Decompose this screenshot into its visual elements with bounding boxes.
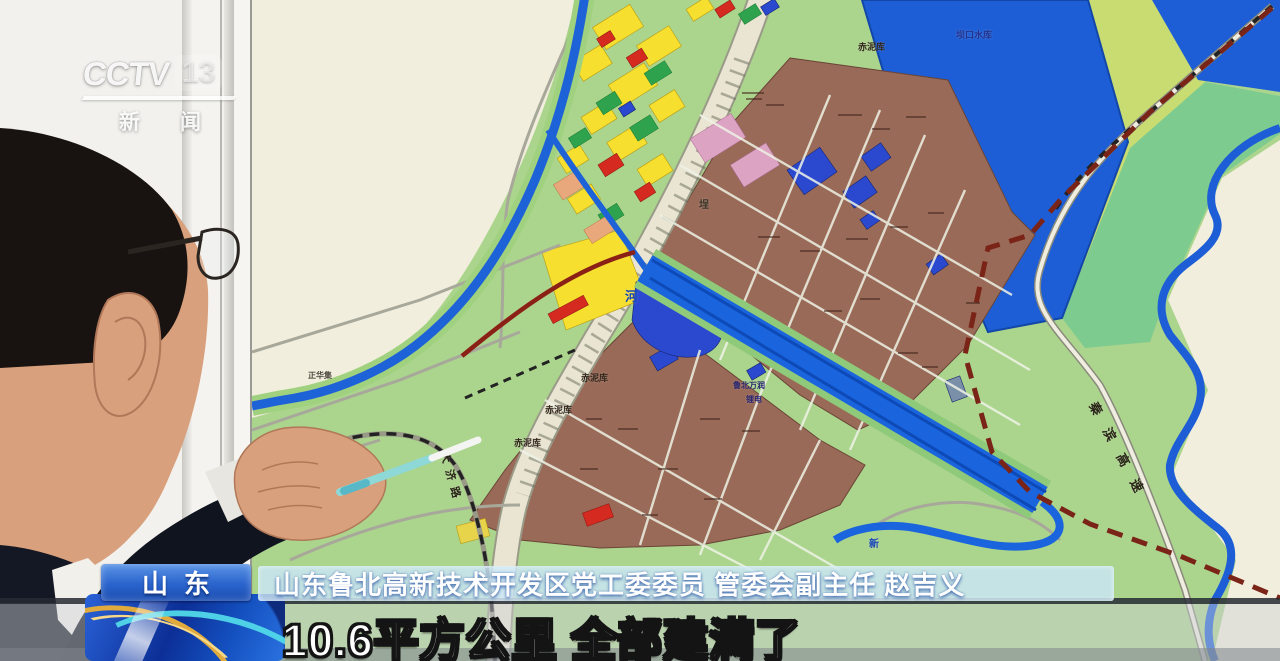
cctv-logo-text: CCTV [81, 55, 171, 93]
subtitle-caption: 10.6平方公里 全部建满了 [282, 604, 801, 661]
cctv-channel-label: 新闻 [119, 106, 241, 136]
cctv-channel-number: 13 [175, 55, 222, 91]
cctv-logo-underline [82, 96, 237, 100]
location-tag: 山东 [101, 564, 251, 601]
cctv-watermark: CCTV 13 新闻 [83, 55, 241, 136]
speaker-title-text: 山东鲁北高新技术开发区党工委委员 管委会副主任 赵吉义 [258, 565, 965, 602]
location-tag-text: 山东 [142, 564, 226, 601]
speaker-title-strip: 山东鲁北高新技术开发区党工委委员 管委会副主任 赵吉义 [258, 566, 1114, 601]
tv-news-frame: 赤泥库 坝口水库 赤泥库 赤泥库 赤泥库 正华集 秦滨高速 大济路 鲁北万润 锂… [0, 0, 1280, 661]
news-corner-graphic [85, 594, 285, 661]
